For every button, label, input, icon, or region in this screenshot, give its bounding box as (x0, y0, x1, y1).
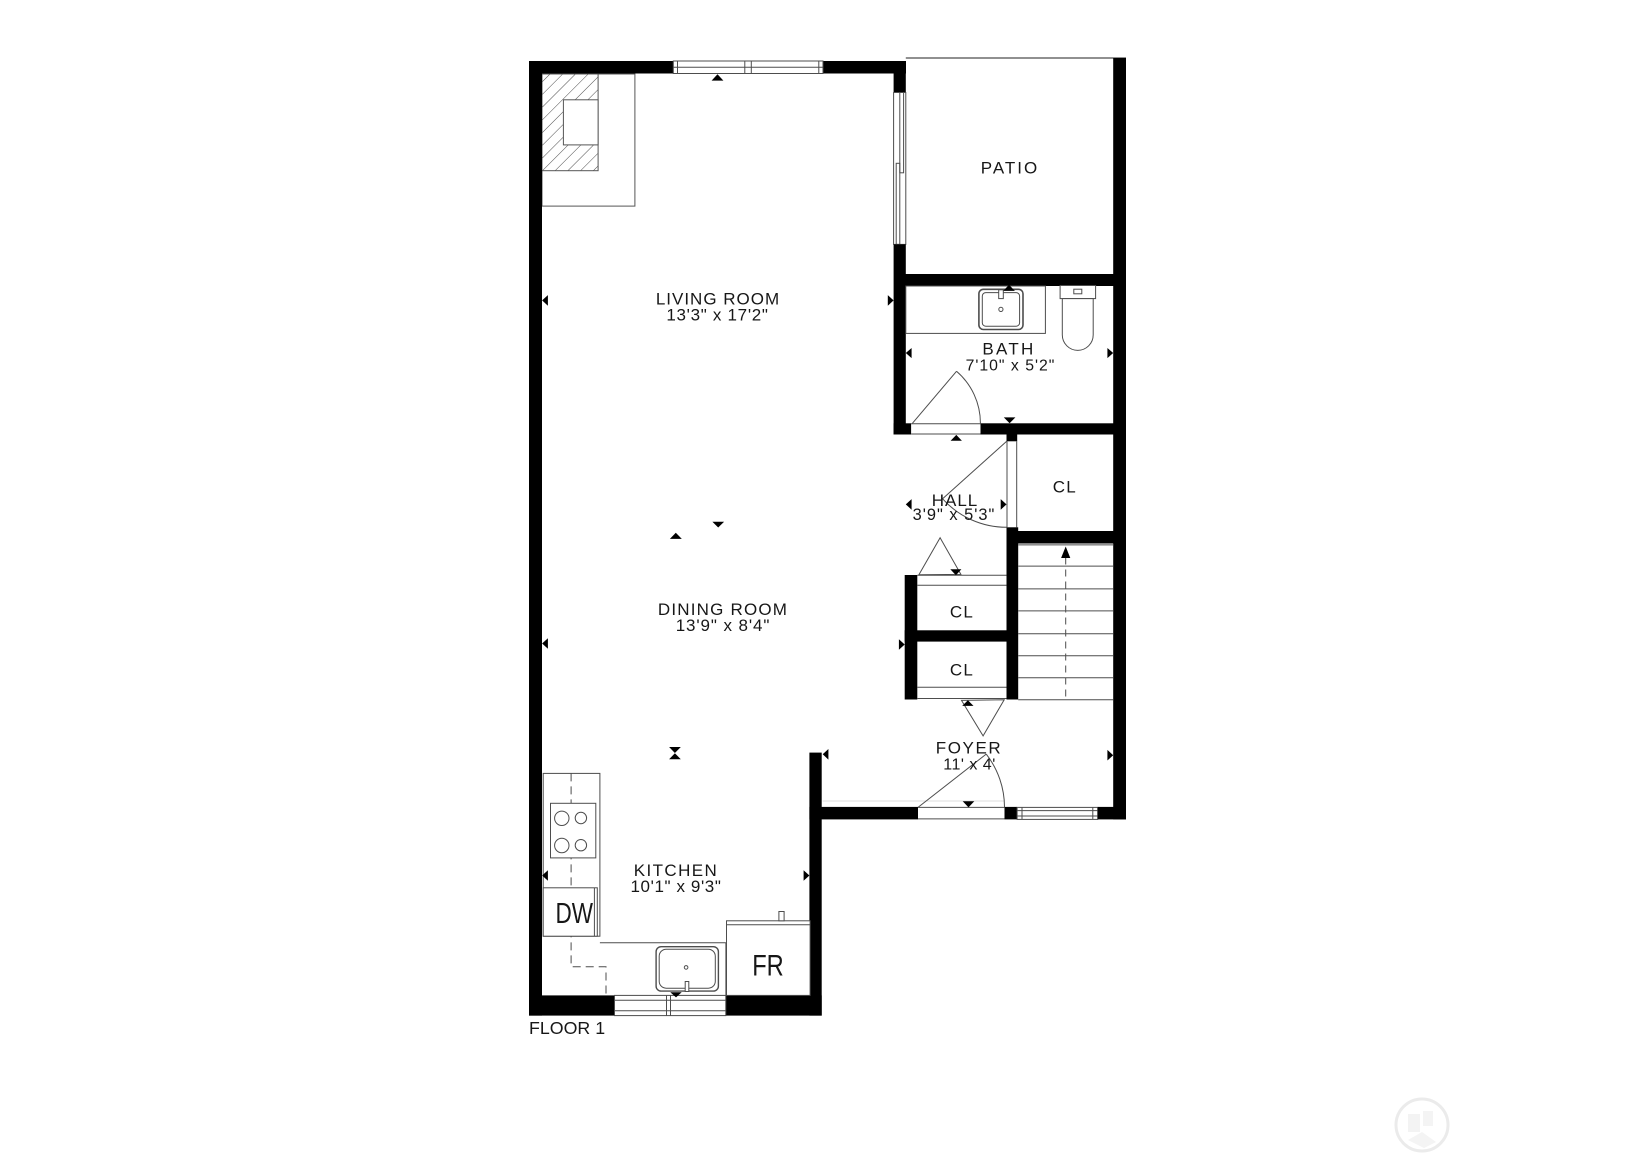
svg-text:FR: FR (752, 950, 784, 983)
svg-text:3'9" x 5'3": 3'9" x 5'3" (913, 506, 996, 524)
svg-text:BATH: BATH (982, 339, 1035, 358)
svg-text:FOYER: FOYER (936, 738, 1003, 757)
svg-text:CL: CL (950, 603, 974, 622)
svg-text:7'10" x 5'2": 7'10" x 5'2" (966, 358, 1056, 375)
svg-text:13'3" x 17'2": 13'3" x 17'2" (666, 306, 768, 325)
svg-text:10'1" x 9'3": 10'1" x 9'3" (631, 877, 722, 896)
svg-text:11' x 4': 11' x 4' (943, 757, 996, 774)
svg-text:CL: CL (1053, 478, 1077, 497)
svg-text:PATIO: PATIO (981, 159, 1040, 178)
svg-text:DW: DW (555, 898, 593, 930)
svg-text:13'9" x 8'4": 13'9" x 8'4" (676, 616, 771, 635)
svg-text:FLOOR 1: FLOOR 1 (529, 1018, 605, 1038)
svg-text:CL: CL (950, 661, 974, 680)
